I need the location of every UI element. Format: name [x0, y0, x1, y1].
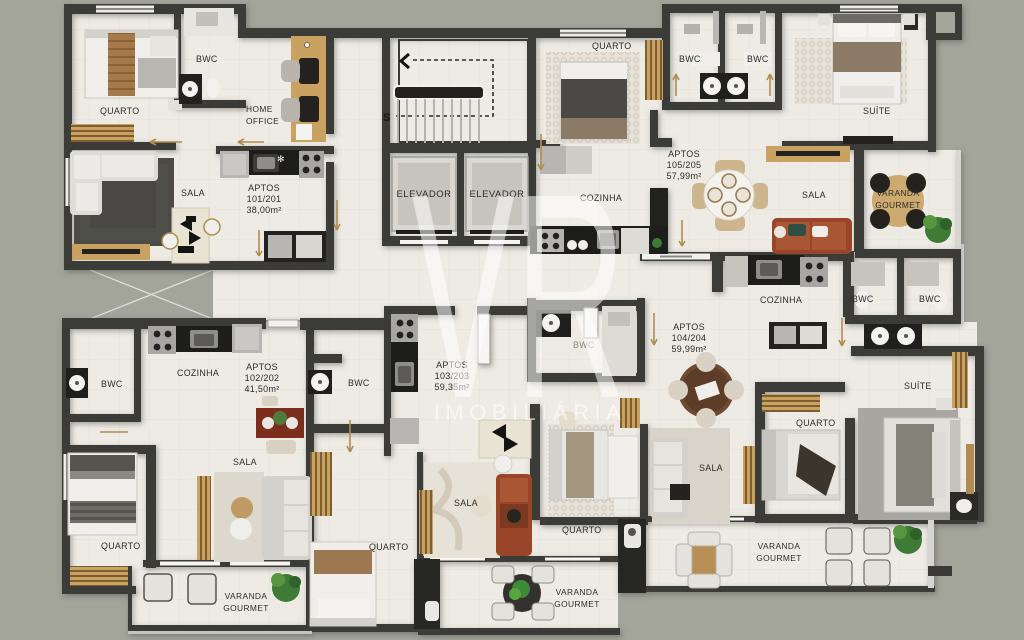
- svg-text:BWC: BWC: [196, 54, 218, 64]
- svg-text:OFFICE: OFFICE: [246, 116, 279, 126]
- svg-text:APTOS: APTOS: [246, 362, 278, 372]
- svg-text:38,00m²: 38,00m²: [246, 205, 281, 215]
- svg-text:IMOBILIÁRIA: IMOBILIÁRIA: [434, 400, 627, 425]
- svg-text:SALA: SALA: [181, 188, 205, 198]
- svg-text:QUARTO: QUARTO: [592, 41, 631, 51]
- svg-text:57,99m²: 57,99m²: [666, 171, 701, 181]
- svg-text:SALA: SALA: [454, 498, 478, 508]
- svg-text:S: S: [383, 112, 390, 124]
- svg-text:APTOS: APTOS: [673, 322, 705, 332]
- svg-text:SUÍTE: SUÍTE: [904, 381, 932, 391]
- svg-text:HOME: HOME: [246, 104, 273, 114]
- svg-text:GOURMET: GOURMET: [223, 603, 269, 613]
- svg-text:BWC: BWC: [348, 378, 370, 388]
- svg-text:VARANDA: VARANDA: [225, 591, 268, 601]
- svg-text:VARANDA: VARANDA: [758, 541, 801, 551]
- svg-text:102/202: 102/202: [245, 373, 280, 383]
- svg-text:41,50m²: 41,50m²: [244, 384, 279, 394]
- svg-text:✻: ✻: [277, 154, 285, 164]
- svg-text:SALA: SALA: [233, 457, 257, 467]
- svg-text:APTOS: APTOS: [668, 149, 700, 159]
- svg-text:COZINHA: COZINHA: [760, 295, 802, 305]
- svg-text:BWC: BWC: [679, 54, 701, 64]
- svg-text:QUARTO: QUARTO: [796, 418, 835, 428]
- svg-text:101/201: 101/201: [247, 194, 282, 204]
- svg-text:VARANDA: VARANDA: [556, 587, 599, 597]
- svg-text:GOURMET: GOURMET: [554, 599, 600, 609]
- svg-text:QUARTO: QUARTO: [100, 106, 139, 116]
- svg-text:SALA: SALA: [802, 190, 826, 200]
- svg-text:SALA: SALA: [699, 463, 723, 473]
- svg-text:SUÍTE: SUÍTE: [863, 106, 891, 116]
- svg-text:59,99m²: 59,99m²: [671, 344, 706, 354]
- svg-text:QUARTO: QUARTO: [101, 541, 140, 551]
- svg-text:APTOS: APTOS: [248, 183, 280, 193]
- svg-text:QUARTO: QUARTO: [369, 542, 408, 552]
- svg-text:GOURMET: GOURMET: [875, 200, 921, 210]
- svg-text:COZINHA: COZINHA: [177, 368, 219, 378]
- svg-text:BWC: BWC: [747, 54, 769, 64]
- svg-text:GOURMET: GOURMET: [756, 553, 802, 563]
- svg-text:QUARTO: QUARTO: [562, 525, 601, 535]
- svg-text:BWC: BWC: [101, 379, 123, 389]
- svg-text:104/204: 104/204: [672, 333, 707, 343]
- svg-text:VARANDA: VARANDA: [877, 188, 920, 198]
- svg-text:BWC: BWC: [852, 294, 874, 304]
- svg-text:BWC: BWC: [919, 294, 941, 304]
- svg-text:105/205: 105/205: [667, 160, 702, 170]
